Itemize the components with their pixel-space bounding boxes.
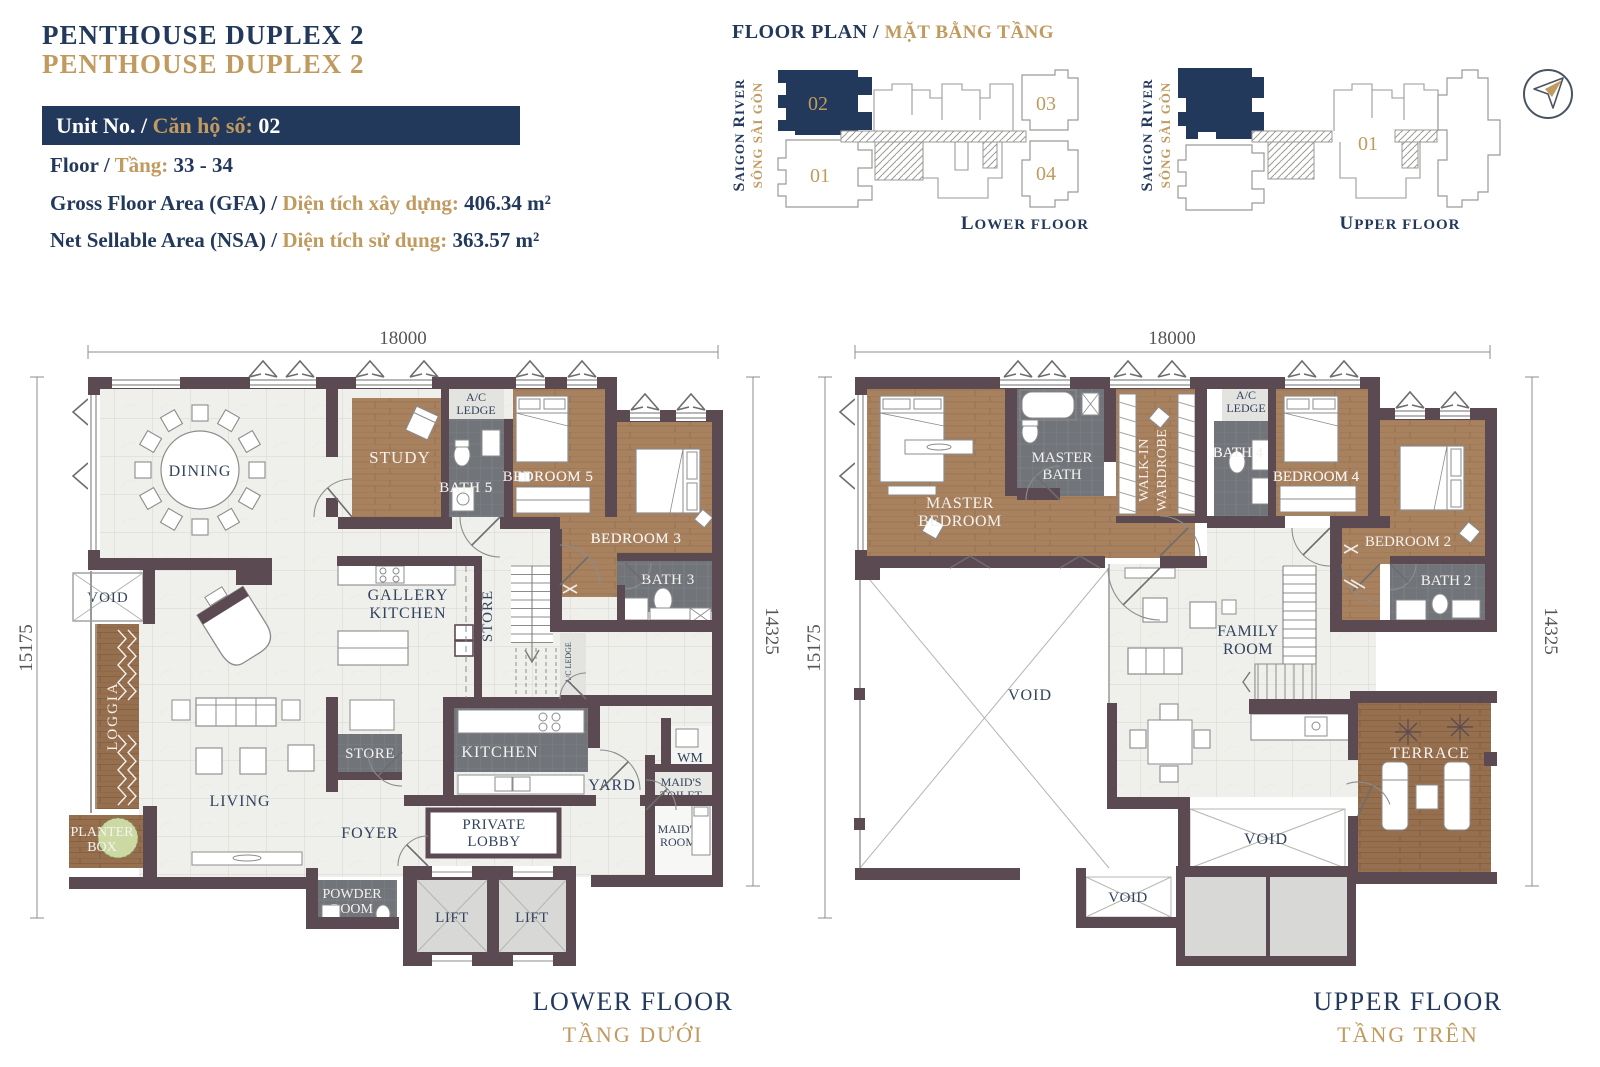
svg-text:LIFT: LIFT bbox=[515, 910, 549, 926]
svg-text:TẦNG TRÊN: TẦNG TRÊN bbox=[1337, 1022, 1479, 1047]
svg-text:BATH 3: BATH 3 bbox=[641, 572, 694, 588]
svg-text:STUDY: STUDY bbox=[369, 448, 431, 467]
svg-text:PENTHOUSE DUPLEX 2: PENTHOUSE DUPLEX 2 bbox=[42, 20, 365, 50]
svg-text:VOID: VOID bbox=[1008, 687, 1052, 704]
svg-text:LOBBY: LOBBY bbox=[467, 834, 520, 850]
svg-text:STORE: STORE bbox=[480, 590, 496, 642]
svg-text:SÔNG SÀI GÒN: SÔNG SÀI GÒN bbox=[750, 82, 765, 189]
svg-text:TẦNG DƯỚI: TẦNG DƯỚI bbox=[563, 1022, 704, 1047]
svg-text:VOID: VOID bbox=[1108, 890, 1148, 906]
svg-text:01: 01 bbox=[1358, 133, 1378, 155]
svg-text:BEDROOM 4: BEDROOM 4 bbox=[1273, 469, 1360, 485]
svg-text:04: 04 bbox=[1036, 163, 1056, 185]
svg-text:BEDROOM 3: BEDROOM 3 bbox=[591, 531, 682, 547]
svg-text:WALK-IN: WALK-IN bbox=[1137, 438, 1152, 501]
svg-text:SAIGON RIVER: SAIGON RIVER bbox=[1139, 78, 1156, 191]
svg-text:BATH 5: BATH 5 bbox=[439, 480, 492, 496]
svg-text:VOID: VOID bbox=[1244, 831, 1288, 848]
svg-text:LOWER FLOOR: LOWER FLOOR bbox=[533, 987, 734, 1016]
svg-text:UPPER FLOOR: UPPER FLOOR bbox=[1313, 987, 1502, 1016]
svg-text:YARD: YARD bbox=[588, 777, 636, 794]
svg-text:STORE: STORE bbox=[345, 746, 395, 762]
svg-text:LIVING: LIVING bbox=[209, 793, 270, 810]
svg-text:PRIVATE: PRIVATE bbox=[462, 817, 525, 833]
svg-text:03: 03 bbox=[1036, 93, 1056, 115]
svg-text:SÔNG SÀI GÒN: SÔNG SÀI GÒN bbox=[1158, 82, 1173, 189]
svg-text:KITCHEN: KITCHEN bbox=[369, 605, 446, 622]
svg-text:14325: 14325 bbox=[1540, 607, 1561, 655]
svg-text:PENTHOUSE DUPLEX 2: PENTHOUSE DUPLEX 2 bbox=[42, 49, 365, 79]
svg-text:Net Sellable Area (NSA) / Diện: Net Sellable Area (NSA) / Diện tích sử d… bbox=[50, 228, 539, 252]
svg-text:PLANTER: PLANTER bbox=[71, 825, 135, 840]
svg-text:UPPER FLOOR: UPPER FLOOR bbox=[1340, 213, 1461, 234]
svg-text:FOYER: FOYER bbox=[341, 825, 398, 842]
svg-text:01: 01 bbox=[810, 165, 830, 187]
svg-text:BATH: BATH bbox=[1042, 467, 1081, 483]
svg-text:FAMILY: FAMILY bbox=[1217, 623, 1279, 640]
svg-text:MASTER: MASTER bbox=[1032, 450, 1093, 466]
svg-text:ROOM: ROOM bbox=[660, 835, 696, 849]
svg-text:VOID: VOID bbox=[87, 590, 129, 606]
svg-text:BEDROOM 5: BEDROOM 5 bbox=[503, 469, 594, 485]
svg-text:A/C: A/C bbox=[466, 390, 486, 404]
svg-text:15175: 15175 bbox=[804, 624, 825, 672]
svg-text:BEDROOM: BEDROOM bbox=[918, 513, 1002, 530]
svg-text:BATH 4: BATH 4 bbox=[1213, 445, 1264, 461]
svg-text:LEDGE: LEDGE bbox=[456, 403, 495, 417]
svg-text:LOGGIA: LOGGIA bbox=[105, 681, 121, 751]
svg-text:LOWER FLOOR: LOWER FLOOR bbox=[961, 213, 1089, 234]
svg-text:WARDROBE: WARDROBE bbox=[1155, 429, 1170, 512]
svg-text:LEDGE: LEDGE bbox=[1226, 401, 1265, 415]
svg-text:DINING: DINING bbox=[169, 463, 232, 480]
svg-text:Gross Floor Area (GFA) / Diện: Gross Floor Area (GFA) / Diện tích xây d… bbox=[50, 191, 551, 215]
svg-text:ROOM: ROOM bbox=[1223, 641, 1273, 658]
svg-text:BATH 2: BATH 2 bbox=[1421, 573, 1471, 589]
svg-text:SAIGON RIVER: SAIGON RIVER bbox=[731, 78, 748, 191]
svg-text:POWDER: POWDER bbox=[322, 887, 382, 902]
svg-text:18000: 18000 bbox=[379, 328, 427, 349]
svg-text:BOX: BOX bbox=[87, 840, 117, 855]
svg-text:KITCHEN: KITCHEN bbox=[461, 744, 538, 761]
svg-text:TERRACE: TERRACE bbox=[1390, 745, 1470, 762]
svg-text:BEDROOM 2: BEDROOM 2 bbox=[1365, 534, 1451, 550]
svg-text:FLOOR PLAN / MẶT BẰNG TẦNG: FLOOR PLAN / MẶT BẰNG TẦNG bbox=[732, 21, 1054, 43]
svg-text:14325: 14325 bbox=[761, 607, 782, 655]
svg-text:WM: WM bbox=[677, 751, 703, 766]
svg-text:Floor / Tầng: 33 - 34: Floor / Tầng: 33 - 34 bbox=[50, 153, 233, 177]
svg-text:MAID'S: MAID'S bbox=[661, 775, 702, 789]
svg-text:A/C: A/C bbox=[1236, 388, 1256, 402]
svg-text:18000: 18000 bbox=[1148, 328, 1196, 349]
svg-text:02: 02 bbox=[808, 93, 828, 115]
svg-text:Unit No. / Căn hộ số: 02: Unit No. / Căn hộ số: 02 bbox=[56, 113, 280, 138]
svg-text:LIFT: LIFT bbox=[435, 910, 469, 926]
svg-text:GALLERY: GALLERY bbox=[368, 587, 449, 604]
svg-text:15175: 15175 bbox=[16, 624, 37, 672]
svg-text:MASTER: MASTER bbox=[926, 495, 994, 512]
